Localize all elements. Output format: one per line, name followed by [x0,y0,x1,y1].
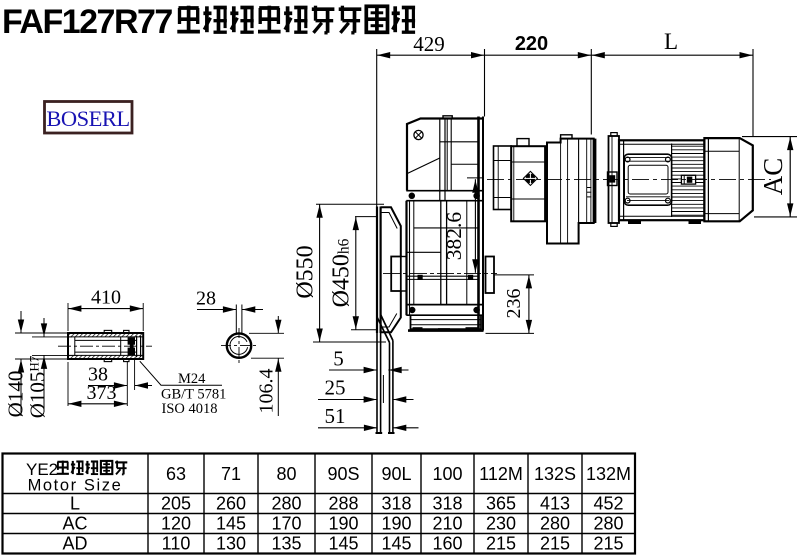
svg-text:145: 145 [328,534,358,554]
svg-text:5: 5 [333,347,344,371]
svg-text:190: 190 [381,514,411,534]
svg-text:130: 130 [216,534,246,554]
svg-text:190: 190 [328,514,358,534]
svg-text:FAF127R77: FAF127R77 [2,3,172,41]
svg-text:71: 71 [221,464,241,484]
svg-text:AC: AC [62,514,87,534]
svg-text:215: 215 [540,534,570,554]
svg-text:205: 205 [161,494,191,514]
svg-text:170: 170 [271,514,301,534]
svg-text:413: 413 [540,494,570,514]
svg-text:160: 160 [432,534,462,554]
svg-text:80: 80 [276,464,296,484]
svg-text:373: 373 [87,382,117,404]
svg-text:112M: 112M [479,464,523,484]
svg-text:318: 318 [381,494,411,514]
svg-text:120: 120 [161,514,191,534]
svg-text:Ø550: Ø550 [293,245,319,298]
svg-text:382.6: 382.6 [442,212,466,261]
svg-text:280: 280 [593,514,623,534]
svg-text:L: L [70,494,80,514]
svg-text:106.4: 106.4 [256,369,278,414]
svg-text:51: 51 [325,404,346,428]
svg-text:318: 318 [432,494,462,514]
svg-text:132S: 132S [534,464,576,484]
svg-text:63: 63 [166,464,186,484]
svg-text:M24: M24 [178,371,206,387]
svg-text:215: 215 [486,534,516,554]
svg-text:90L: 90L [381,464,411,484]
svg-text:25: 25 [325,376,346,400]
svg-text:AC: AC [758,158,788,196]
svg-text:L: L [664,29,678,54]
svg-text:280: 280 [271,494,301,514]
svg-text:452: 452 [593,494,623,514]
svg-text:100: 100 [432,464,462,484]
svg-text:Ø140: Ø140 [4,371,28,418]
svg-text:220: 220 [515,33,548,55]
svg-text:280: 280 [540,514,570,534]
svg-text:145: 145 [216,514,246,534]
svg-text:410: 410 [91,287,121,309]
svg-text:AD: AD [62,534,87,554]
svg-text:215: 215 [593,534,623,554]
svg-text:BOSERL: BOSERL [46,106,129,131]
svg-text:236: 236 [503,289,525,319]
svg-text:429: 429 [413,32,445,56]
svg-text:Motor Size: Motor Size [28,477,123,495]
svg-text:132M: 132M [586,464,631,484]
svg-text:ISO 4018: ISO 4018 [162,401,218,417]
svg-text:28: 28 [196,288,216,310]
svg-text:288: 288 [328,494,358,514]
svg-text:145: 145 [381,534,411,554]
svg-text:210: 210 [432,514,462,534]
svg-text:365: 365 [486,494,516,514]
svg-text:230: 230 [486,514,516,534]
svg-text:135: 135 [271,534,301,554]
svg-text:90S: 90S [327,464,359,484]
svg-text:110: 110 [162,534,191,554]
svg-text:260: 260 [216,494,246,514]
